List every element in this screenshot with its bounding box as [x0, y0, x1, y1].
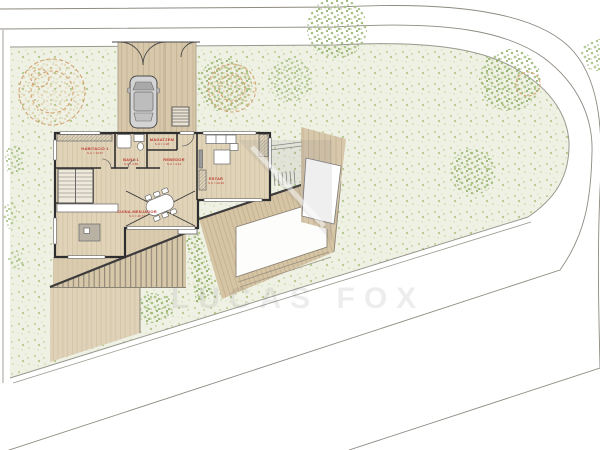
tree [479, 49, 541, 111]
kitchen-glass-wall [127, 227, 195, 230]
tree [307, 0, 367, 58]
room-area-bany-1: S.U = 4.86 [124, 162, 139, 166]
exterior-stairs [172, 107, 189, 126]
room-area-cuina-menjador: S.U = 40.77 [129, 214, 145, 218]
wardrobe [57, 135, 112, 142]
tree-orange [19, 59, 85, 125]
car-icon [128, 76, 160, 128]
room-area-estar: S.U = 20.46 [208, 181, 224, 185]
kitchen-door [68, 256, 105, 259]
tv-unit [199, 150, 203, 168]
entrance-door [180, 132, 194, 135]
tree [450, 149, 496, 195]
sink [134, 135, 144, 142]
site-plan-page: HABITACIÓ 1 S.U = 10.97 BANY 1 S.U = 4.8… [0, 0, 600, 450]
interior-stairs [58, 169, 93, 203]
brand-watermark-text: LUCAS FOX [171, 282, 425, 315]
sofa [206, 135, 236, 144]
driveway [112, 42, 200, 133]
road-outer-line-bottom [349, 368, 600, 450]
site-plan-drawing: HABITACIÓ 1 S.U = 10.97 BANY 1 S.U = 4.8… [0, 0, 600, 450]
living-room-glass-wall [204, 199, 262, 202]
armchair [230, 144, 238, 151]
toilet [138, 143, 144, 151]
room-area-habitacio-1: S.U = 10.97 [87, 151, 103, 155]
bathtub [117, 135, 131, 149]
room-area-magatzem: S.U = 1.98 [155, 142, 170, 146]
coffee-table [214, 150, 230, 164]
tree-orange [208, 64, 256, 112]
room-area-rebedor: S.U = 4.14 [167, 162, 182, 166]
shelving [199, 170, 206, 190]
island-sink [84, 228, 90, 234]
kitchen-counter [57, 204, 118, 212]
